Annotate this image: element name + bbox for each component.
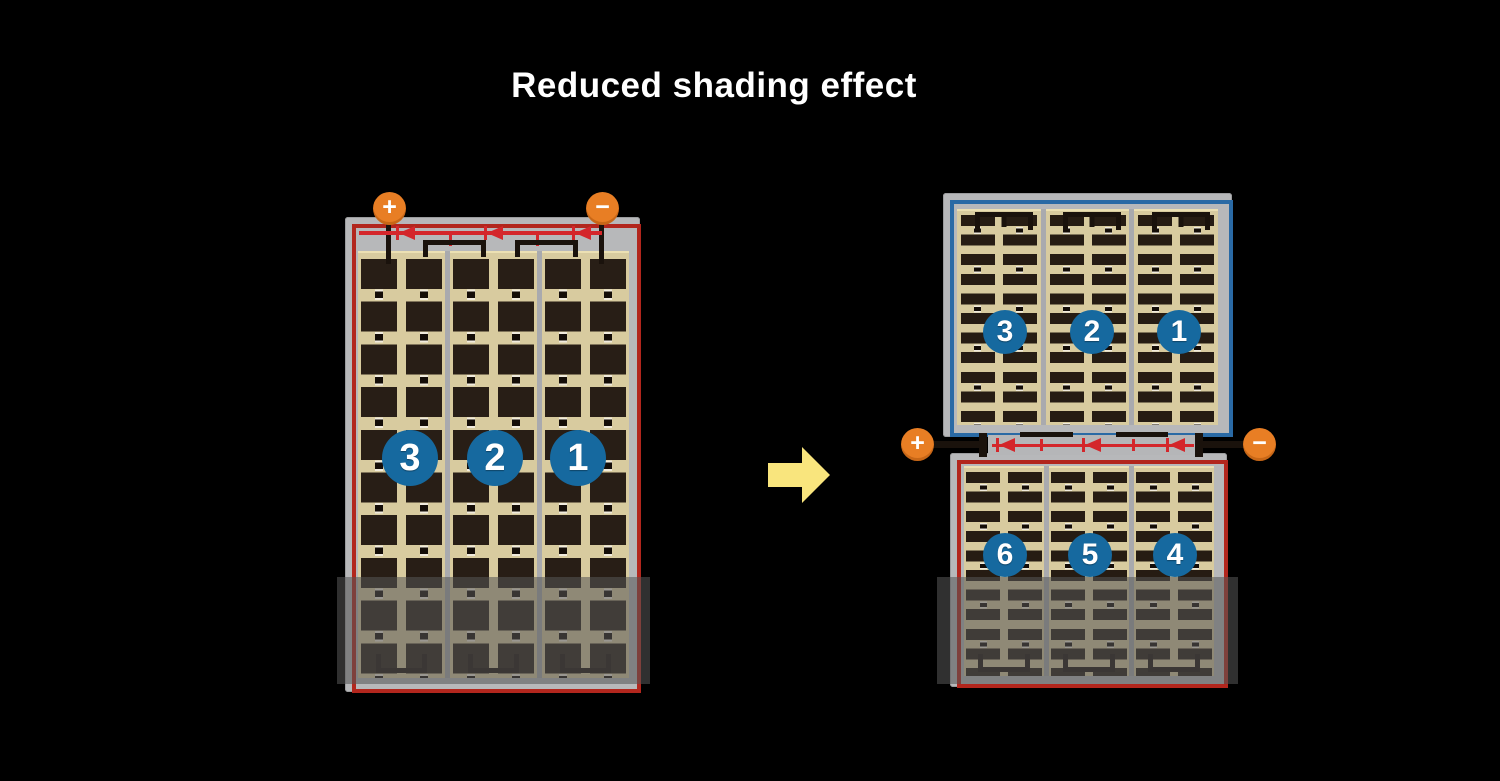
wire-tap xyxy=(1132,439,1135,451)
positive-terminal-icon: + xyxy=(373,192,406,225)
junction-end-bar xyxy=(979,433,987,457)
string-number-badge: 6 xyxy=(983,533,1027,577)
string-number-badge: 3 xyxy=(382,430,438,486)
string-top-connector xyxy=(1063,212,1121,230)
string-number-badge: 2 xyxy=(1070,310,1114,354)
string-number-badge: 5 xyxy=(1068,533,1112,577)
right-arrow-icon xyxy=(802,447,830,503)
bypass-diode-icon xyxy=(484,226,504,240)
bypass-diode-icon xyxy=(996,438,1016,452)
string-top-connector xyxy=(1152,212,1210,230)
shading-overlay xyxy=(937,577,1238,684)
negative-terminal-icon: − xyxy=(586,192,619,225)
diagram-title: Reduced shading effect xyxy=(0,66,1428,106)
bypass-diode-icon xyxy=(572,226,592,240)
negative-lead-wire xyxy=(1199,441,1245,448)
right-arrow-icon xyxy=(768,463,804,487)
string-top-connector xyxy=(975,212,1033,230)
series-link-wire xyxy=(1116,432,1168,437)
series-link-wire xyxy=(1020,432,1073,437)
string-number-badge: 4 xyxy=(1153,533,1197,577)
diagram-canvas: Reduced shading effect 3 2 1 + − xyxy=(0,0,1500,781)
string-top-connector xyxy=(515,240,578,257)
bypass-diode-icon xyxy=(396,226,416,240)
string-top-connector xyxy=(423,240,486,257)
negative-terminal-icon: − xyxy=(1243,428,1276,461)
bypass-diode-icon xyxy=(1166,438,1186,452)
bypass-diode-icon xyxy=(1082,438,1102,452)
string-number-badge: 1 xyxy=(550,430,606,486)
junction-end-bar xyxy=(1195,433,1203,457)
string-number-badge: 2 xyxy=(467,430,523,486)
string-number-badge: 1 xyxy=(1157,310,1201,354)
shading-overlay xyxy=(337,577,650,684)
string-number-badge: 3 xyxy=(983,310,1027,354)
positive-terminal-icon: + xyxy=(901,428,934,461)
wire-tap xyxy=(1040,439,1043,451)
positive-lead-wire xyxy=(930,441,982,448)
